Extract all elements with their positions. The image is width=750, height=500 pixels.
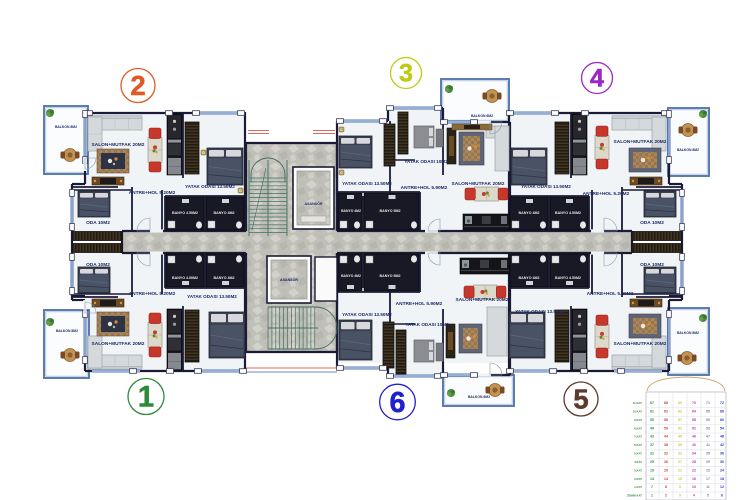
svg-text:67: 67	[650, 401, 654, 405]
svg-text:29: 29	[706, 460, 710, 464]
svg-text:BANYO 4.50M2: BANYO 4.50M2	[172, 211, 198, 215]
svg-text:21: 21	[678, 468, 682, 472]
svg-text:4: 4	[693, 494, 695, 498]
svg-text:66: 66	[720, 409, 724, 413]
svg-text:ODA 10M2: ODA 10M2	[640, 262, 664, 268]
svg-text:61: 61	[650, 409, 654, 413]
svg-text:27: 27	[678, 460, 682, 464]
svg-text:8.KAT: 8.KAT	[634, 426, 642, 430]
svg-text:45: 45	[678, 435, 682, 439]
svg-text:ASANSÖR: ASANSÖR	[280, 277, 298, 282]
svg-text:18: 18	[720, 477, 724, 481]
svg-text:YATAK ODASI 13.50M2: YATAK ODASI 13.50M2	[342, 312, 392, 317]
svg-text:BANYO 4M2: BANYO 4M2	[341, 209, 361, 213]
svg-text:2: 2	[130, 70, 145, 101]
svg-text:57: 57	[678, 418, 682, 422]
svg-text:ANTRE+HOL 5.20M2: ANTRE+HOL 5.20M2	[583, 191, 630, 197]
svg-text:19: 19	[650, 468, 654, 472]
svg-text:71: 71	[706, 401, 710, 405]
svg-text:54: 54	[720, 426, 724, 430]
svg-text:3: 3	[679, 494, 681, 498]
svg-text:25: 25	[650, 460, 654, 464]
svg-text:2: 2	[665, 494, 667, 498]
svg-text:YATAK ODASI 13.50M2: YATAK ODASI 13.50M2	[187, 294, 237, 299]
svg-text:56: 56	[664, 418, 668, 422]
svg-text:4.KAT: 4.KAT	[634, 460, 642, 464]
svg-text:14: 14	[664, 477, 668, 481]
svg-text:SALON+MUTFAK 20M2: SALON+MUTFAK 20M2	[92, 341, 145, 347]
svg-text:39: 39	[678, 443, 682, 447]
svg-text:SALON+MUTFAK 20M2: SALON+MUTFAK 20M2	[614, 139, 667, 145]
svg-text:YATAK ODASI 10M2: YATAK ODASI 10M2	[404, 159, 448, 164]
svg-text:32: 32	[664, 452, 668, 456]
svg-text:YATAK ODASI 13.50M2: YATAK ODASI 13.50M2	[185, 184, 235, 189]
svg-text:9: 9	[679, 485, 681, 489]
svg-text:17: 17	[706, 477, 710, 481]
svg-text:20: 20	[664, 468, 668, 472]
svg-text:2.KAT: 2.KAT	[634, 477, 642, 481]
svg-text:52: 52	[692, 426, 696, 430]
svg-text:60: 60	[720, 418, 724, 422]
svg-text:BALKON 6M2: BALKON 6M2	[471, 114, 493, 118]
svg-text:70: 70	[692, 401, 696, 405]
svg-text:SALON+MUTFAK 20M2: SALON+MUTFAK 20M2	[456, 297, 509, 303]
svg-text:65: 65	[706, 409, 710, 413]
svg-text:53: 53	[706, 426, 710, 430]
svg-text:YATAK ODASI 13.50M2: YATAK ODASI 13.50M2	[515, 309, 565, 314]
svg-text:BANYO 4M2: BANYO 4M2	[214, 276, 235, 280]
svg-text:62: 62	[664, 409, 668, 413]
svg-text:YATAK ODASI 13.50M2: YATAK ODASI 13.50M2	[521, 184, 571, 189]
svg-text:BALKON 8M2: BALKON 8M2	[677, 331, 699, 335]
svg-text:SALON+MUTFAK 20M2: SALON+MUTFAK 20M2	[452, 181, 505, 187]
svg-text:ANTRE+HOL 5.20M2: ANTRE+HOL 5.20M2	[129, 190, 176, 196]
svg-text:6.KAT: 6.KAT	[634, 443, 642, 447]
svg-text:37: 37	[650, 443, 654, 447]
svg-text:BANYO 4M2: BANYO 4M2	[214, 211, 235, 215]
svg-text:64: 64	[692, 409, 696, 413]
svg-text:11: 11	[706, 485, 710, 489]
svg-text:ZEMIN KAT: ZEMIN KAT	[627, 494, 642, 498]
svg-text:ANTRE+HOL 5.20M2: ANTRE+HOL 5.20M2	[129, 291, 176, 297]
svg-text:ANTRE+HOL 5.20M2: ANTRE+HOL 5.20M2	[587, 291, 634, 297]
svg-text:BANYO 4M2: BANYO 4M2	[519, 211, 540, 215]
svg-text:7: 7	[651, 485, 653, 489]
svg-text:46: 46	[692, 435, 696, 439]
svg-text:BALKON 8M2: BALKON 8M2	[56, 329, 78, 333]
svg-text:28: 28	[692, 460, 696, 464]
svg-text:44: 44	[664, 435, 668, 439]
svg-text:BANYO 4.50M2: BANYO 4.50M2	[555, 211, 581, 215]
svg-text:72: 72	[720, 401, 724, 405]
svg-text:34: 34	[692, 452, 696, 456]
svg-text:3.KAT: 3.KAT	[634, 468, 642, 472]
svg-text:BANYO 4.50M2: BANYO 4.50M2	[172, 276, 198, 280]
svg-text:63: 63	[678, 409, 682, 413]
svg-text:3: 3	[399, 60, 413, 88]
svg-text:SALON+MUTFAK 20M2: SALON+MUTFAK 20M2	[92, 142, 145, 148]
svg-text:68: 68	[664, 401, 668, 405]
svg-text:ODA 10M2: ODA 10M2	[86, 262, 110, 268]
svg-text:43: 43	[650, 435, 654, 439]
svg-text:9.KAT: 9.KAT	[634, 418, 642, 422]
svg-text:10.KAT: 10.KAT	[633, 409, 643, 413]
svg-text:12: 12	[720, 485, 724, 489]
svg-text:BANYO 5M2: BANYO 5M2	[380, 209, 401, 213]
svg-text:10: 10	[692, 485, 696, 489]
svg-text:ANTRE+HOL 5.90M2: ANTRE+HOL 5.90M2	[396, 301, 443, 307]
svg-text:ODA 10M2: ODA 10M2	[640, 220, 664, 226]
svg-text:35: 35	[706, 452, 710, 456]
svg-text:23: 23	[706, 468, 710, 472]
svg-text:5: 5	[707, 494, 709, 498]
svg-text:48: 48	[720, 435, 724, 439]
svg-text:16: 16	[692, 477, 696, 481]
svg-text:1.KAT: 1.KAT	[634, 485, 642, 489]
svg-text:ODA 10M2: ODA 10M2	[86, 220, 110, 226]
svg-text:BANYO 4M2: BANYO 4M2	[519, 276, 540, 280]
svg-text:BANYO 4.50M2: BANYO 4.50M2	[555, 276, 581, 280]
svg-text:ASANSÖR: ASANSÖR	[305, 201, 323, 206]
svg-text:26: 26	[664, 460, 668, 464]
svg-text:50: 50	[664, 426, 668, 430]
svg-text:BALKON 8M2: BALKON 8M2	[55, 125, 77, 129]
svg-text:38: 38	[664, 443, 668, 447]
svg-text:51: 51	[678, 426, 682, 430]
svg-text:SALON+MUTFAK 20M2: SALON+MUTFAK 20M2	[614, 341, 667, 347]
svg-text:36: 36	[720, 452, 724, 456]
svg-text:4: 4	[590, 65, 604, 93]
svg-text:BANYO 4M2: BANYO 4M2	[341, 274, 361, 278]
svg-text:1: 1	[651, 494, 653, 498]
svg-text:30: 30	[720, 460, 724, 464]
svg-text:40: 40	[692, 443, 696, 447]
svg-text:58: 58	[692, 418, 696, 422]
svg-text:6: 6	[721, 494, 723, 498]
svg-text:7.KAT: 7.KAT	[634, 435, 642, 439]
svg-text:BALKON 8M2: BALKON 8M2	[677, 148, 699, 152]
svg-text:ANTRE+HOL 5.90M2: ANTRE+HOL 5.90M2	[401, 185, 448, 191]
svg-text:5.KAT: 5.KAT	[634, 452, 642, 456]
svg-text:22: 22	[692, 468, 696, 472]
svg-text:42: 42	[720, 443, 724, 447]
svg-text:49: 49	[650, 426, 654, 430]
svg-text:33: 33	[678, 452, 682, 456]
svg-text:47: 47	[706, 435, 710, 439]
svg-text:YATAK ODASI 10M2: YATAK ODASI 10M2	[405, 322, 449, 327]
svg-text:55: 55	[650, 418, 654, 422]
svg-text:6: 6	[389, 387, 405, 419]
svg-text:41: 41	[706, 443, 710, 447]
svg-text:59: 59	[706, 418, 710, 422]
svg-text:1: 1	[138, 382, 154, 414]
svg-text:11.KAT: 11.KAT	[633, 401, 643, 405]
svg-text:5: 5	[573, 384, 588, 415]
svg-text:BANYO 5M2: BANYO 5M2	[380, 274, 401, 278]
svg-text:13: 13	[650, 477, 654, 481]
svg-text:YATAK ODASI 13.50M2: YATAK ODASI 13.50M2	[342, 181, 392, 186]
svg-text:8: 8	[665, 485, 667, 489]
svg-text:BALKON 6M2: BALKON 6M2	[468, 395, 490, 399]
svg-text:24: 24	[720, 468, 724, 472]
svg-text:15: 15	[678, 477, 682, 481]
svg-text:69: 69	[678, 401, 682, 405]
svg-text:31: 31	[650, 452, 654, 456]
